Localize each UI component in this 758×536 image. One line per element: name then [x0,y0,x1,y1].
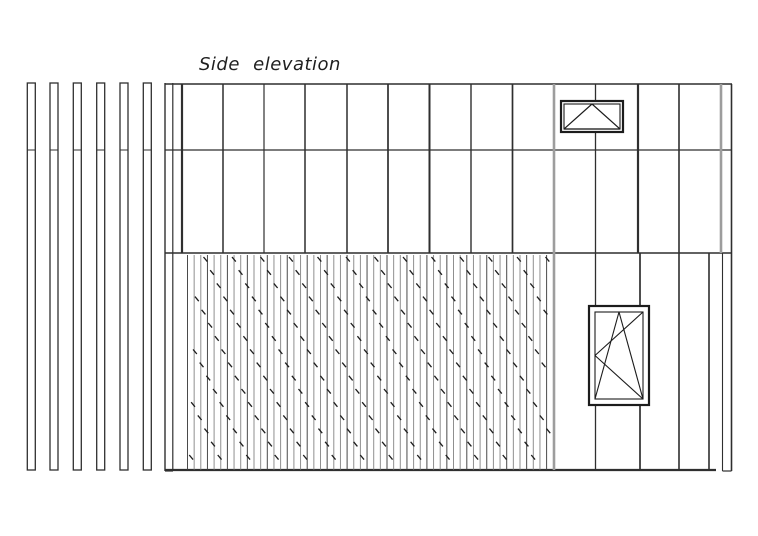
hatch-mark [406,376,410,381]
fin [97,83,105,470]
hatch-mark [336,349,340,354]
hatch-mark [496,442,500,447]
hatch-mark [468,442,472,447]
hatch-mark [535,349,539,354]
hatch-mark [342,363,346,368]
hatch-mark [394,297,398,302]
hatch-mark [289,257,293,262]
hatch-mark [250,349,254,354]
fin [120,83,128,470]
hatch-mark [393,349,397,354]
fin [143,83,151,470]
hatch-mark [503,455,507,460]
hatch-mark [302,283,306,288]
hatch-mark [283,415,287,420]
hatch-mark [356,389,360,394]
hatch-mark [222,349,226,354]
hatch-mark [515,310,519,315]
hatch-mark [189,455,193,460]
hatch-mark [230,310,234,315]
hatch-mark [436,323,440,328]
hatch-mark [414,336,418,341]
tilt-turn-window [589,306,649,405]
hatch-mark [542,363,546,368]
hatch-mark [366,297,370,302]
hatch-mark [213,389,217,394]
hatch-mark [476,402,480,407]
hatch-mark [470,389,474,394]
hatch-mark [210,270,214,275]
hatch-mark [381,270,385,275]
hatch-mark [416,283,420,288]
hatch-mark [226,415,230,420]
fin [27,83,35,470]
hatch-mark [382,442,386,447]
hatch-mark [495,270,499,275]
hatch-mark [255,415,259,420]
hatch-mark [215,336,219,341]
hatch-mark [204,257,208,262]
hatch-mark [522,323,526,328]
hatch-mark [528,336,532,341]
hatch-mark [446,455,450,460]
side-elevation-drawing [0,0,758,536]
hatch-mark [290,429,294,434]
hatch-mark [489,429,493,434]
hatch-mark [373,310,377,315]
hatch-mark [322,323,326,328]
hatch-mark [275,455,279,460]
hatch-mark [309,297,313,302]
hatch-mark [489,257,493,262]
drawing-title: Side elevation [199,54,341,75]
hatch-mark [401,310,405,315]
hatch-mark [423,297,427,302]
hatch-mark [546,257,550,262]
hatch-mark [448,402,452,407]
hatch-mark [450,349,454,354]
hatch-mark [375,429,379,434]
hatch-mark [277,402,281,407]
hatch-mark [263,376,267,381]
hatch-mark [233,429,237,434]
hatch-mark [217,283,221,288]
hatch-mark [248,402,252,407]
hatch-mark [297,442,301,447]
hatch-mark [428,363,432,368]
hatch-mark [220,402,224,407]
hatch-mark [296,270,300,275]
hatch-mark [389,455,393,460]
hatch-mark [261,429,265,434]
hatch-mark [270,389,274,394]
hatch-mark [208,323,212,328]
hatch-mark [200,363,204,368]
hatch-mark [441,389,445,394]
hatch-mark [206,376,210,381]
hatch-mark [235,376,239,381]
hatch-mark [432,429,436,434]
hatch-mark [369,415,373,420]
hatch-mark [426,415,430,420]
hatch-mark [240,442,244,447]
hatch-mark [443,336,447,341]
hatch-mark [195,297,199,302]
cladding-hatch [188,255,551,470]
hatch-mark [223,297,227,302]
hatch-mark [508,297,512,302]
hatch-mark [375,257,379,262]
hatch-mark [193,349,197,354]
hatch-mark [303,455,307,460]
hatch-mark [257,363,261,368]
hatch-mark [461,429,465,434]
hatch-mark [430,310,434,315]
hatch-mark [242,389,246,394]
hatch-mark [434,376,438,381]
hatch-mark [483,415,487,420]
hatch-mark [421,349,425,354]
hatch-mark [329,336,333,341]
hatch-mark [268,442,272,447]
hatch-mark [316,310,320,315]
hatch-mark [246,455,250,460]
hatch-mark [454,415,458,420]
hatch-mark [463,376,467,381]
hatch-mark [410,270,414,275]
hatch-mark [237,323,241,328]
awning-window-outer-frame [561,101,623,132]
hatch-mark [403,257,407,262]
hatch-mark [353,270,357,275]
hatch-mark [362,402,366,407]
facade-lines [165,83,732,471]
hatch-mark [456,363,460,368]
hatch-mark [474,455,478,460]
hatch-mark [346,257,350,262]
hatch-mark [502,283,506,288]
hatch-mark [399,363,403,368]
fin [50,83,58,470]
hatch-mark [359,283,363,288]
fin [73,83,81,470]
hatch-mark [202,310,206,315]
hatch-mark [388,283,392,288]
hatch-mark [243,336,247,341]
page: Side elevation [0,0,758,536]
awning-window [561,101,623,132]
hatch-mark [413,389,417,394]
hatch-mark [349,376,353,381]
left-fins [27,83,151,470]
hatch-mark [386,336,390,341]
hatch-mark [379,323,383,328]
hatch-mark [439,442,443,447]
hatch-mark [228,363,232,368]
hatch-mark [408,323,412,328]
hatch-mark [419,402,423,407]
